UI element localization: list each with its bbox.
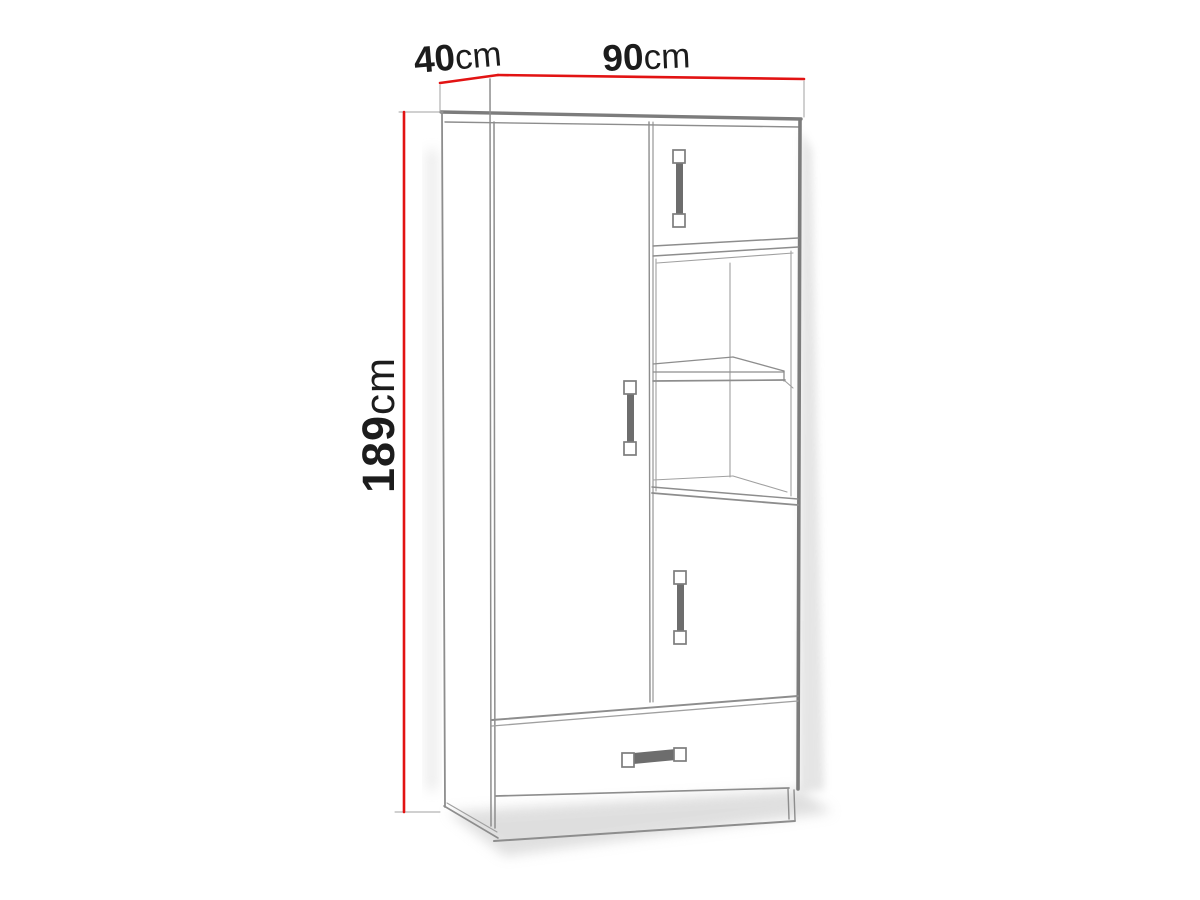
plinth-right-inset-outer — [788, 789, 789, 819]
niche-bottom-frame-edge — [652, 493, 798, 505]
shelf-right-edge — [733, 357, 784, 371]
open-shelf-niche — [652, 247, 798, 505]
shelf-wall-junction-edge — [785, 381, 793, 388]
left-back-edge — [490, 79, 491, 826]
left-door-handle-bar — [627, 392, 634, 444]
bottom-right-door — [674, 571, 686, 644]
diagram-canvas: 40cm 90cm 189cm — [0, 0, 1200, 900]
cabinet-body — [441, 79, 801, 838]
drawer-top-inner-edge — [492, 701, 798, 726]
top-right-door-handle-bar — [676, 161, 683, 216]
drawer-top-edge — [492, 696, 798, 720]
wardrobe-dimension-drawing: 40cm 90cm 189cm — [0, 0, 1200, 900]
left-outer-edge — [442, 113, 445, 807]
niche-floor-back-left-edge — [653, 476, 733, 480]
drawer-handle-left-cap — [622, 753, 634, 767]
left-door-handle-bottom-cap — [624, 442, 636, 455]
width-dimension-label: 90cm — [602, 34, 692, 79]
drawer — [492, 696, 798, 796]
right-outer-edge — [798, 121, 800, 789]
top-inner-edge — [445, 122, 799, 127]
niche-floor-right-edge — [733, 476, 787, 492]
top-right-door — [653, 150, 798, 246]
top-front-edge — [441, 112, 801, 119]
bottom-right-door-handle-bottom-cap — [674, 631, 686, 644]
top-right-door-bottom-edge — [653, 238, 798, 246]
left-door-left-edge — [494, 122, 495, 828]
center-divider-line — [649, 122, 650, 702]
plinth-right-inset-inner — [794, 790, 795, 820]
shelf-back-left-edge — [653, 357, 733, 364]
bottom-right-door-handle-bar — [677, 582, 684, 633]
shelf-front-bottom-edge — [653, 380, 785, 381]
top-right-door-handle-bottom-cap — [673, 214, 685, 227]
drawer-handle-bar — [633, 749, 676, 764]
left-door-handle — [624, 381, 636, 455]
drawer-handle-right-cap — [674, 748, 686, 761]
top-right-door-handle-top-cap — [673, 150, 685, 163]
left-side-shadow — [427, 150, 437, 790]
right-side-shadow — [799, 130, 824, 792]
depth-dimension-label: 40cm — [412, 32, 503, 80]
left-door-handle-top-cap — [624, 381, 636, 394]
height-dimension-label: 189cm — [353, 357, 404, 493]
dimension-annotations — [395, 75, 804, 812]
bottom-right-door-handle-top-cap — [674, 571, 686, 584]
